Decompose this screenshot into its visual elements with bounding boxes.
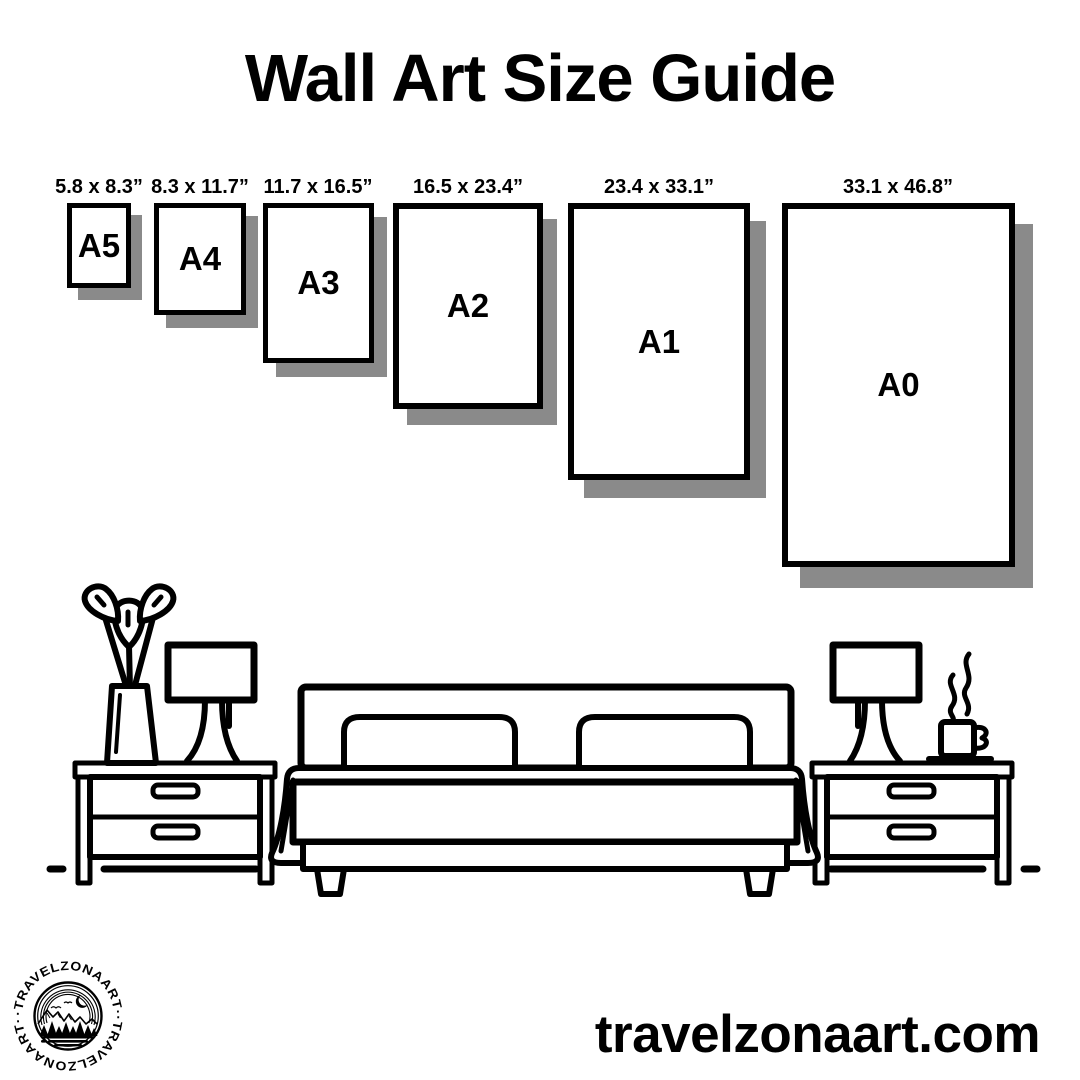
dimension-label-a1: 23.4 x 33.1”	[559, 176, 759, 199]
paper-code-label: A1	[638, 323, 680, 361]
paper-code-label: A2	[447, 287, 489, 325]
coffee-cup-icon	[929, 722, 991, 759]
wall-art-size-guide: Wall Art Size Guide 5.8 x 8.3” 8.3 x 11.…	[0, 0, 1080, 1080]
paper-a4: A4	[154, 203, 246, 315]
paper-a3: A3	[263, 203, 374, 363]
website-url: travelzonaart.com	[595, 1004, 1040, 1065]
page-title: Wall Art Size Guide	[0, 40, 1080, 117]
paper-code-label: A4	[179, 240, 221, 278]
dimension-label-a0: 33.1 x 46.8”	[798, 176, 998, 199]
bedroom-illustration	[0, 580, 1080, 900]
paper-code-label: A5	[78, 227, 120, 265]
plant-vase-icon	[85, 586, 174, 763]
steam-icon	[950, 654, 969, 720]
paper-code-label: A0	[877, 366, 919, 404]
paper-a0: A0	[782, 203, 1015, 567]
paper-a2: A2	[393, 203, 543, 409]
paper-a1: A1	[568, 203, 750, 480]
double-bed-icon	[271, 687, 818, 894]
paper-code-label: A3	[297, 264, 339, 302]
brand-logo: ·TRAVELZONAART··TRAVELZONAART·	[5, 953, 131, 1079]
dimension-label-a2: 16.5 x 23.4”	[368, 176, 568, 199]
paper-a5: A5	[67, 203, 131, 288]
